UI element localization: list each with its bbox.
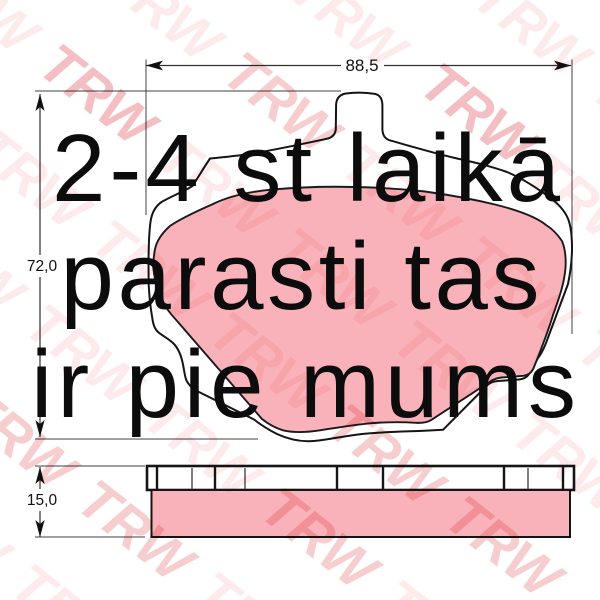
svg-text:72,0: 72,0 <box>27 258 58 275</box>
